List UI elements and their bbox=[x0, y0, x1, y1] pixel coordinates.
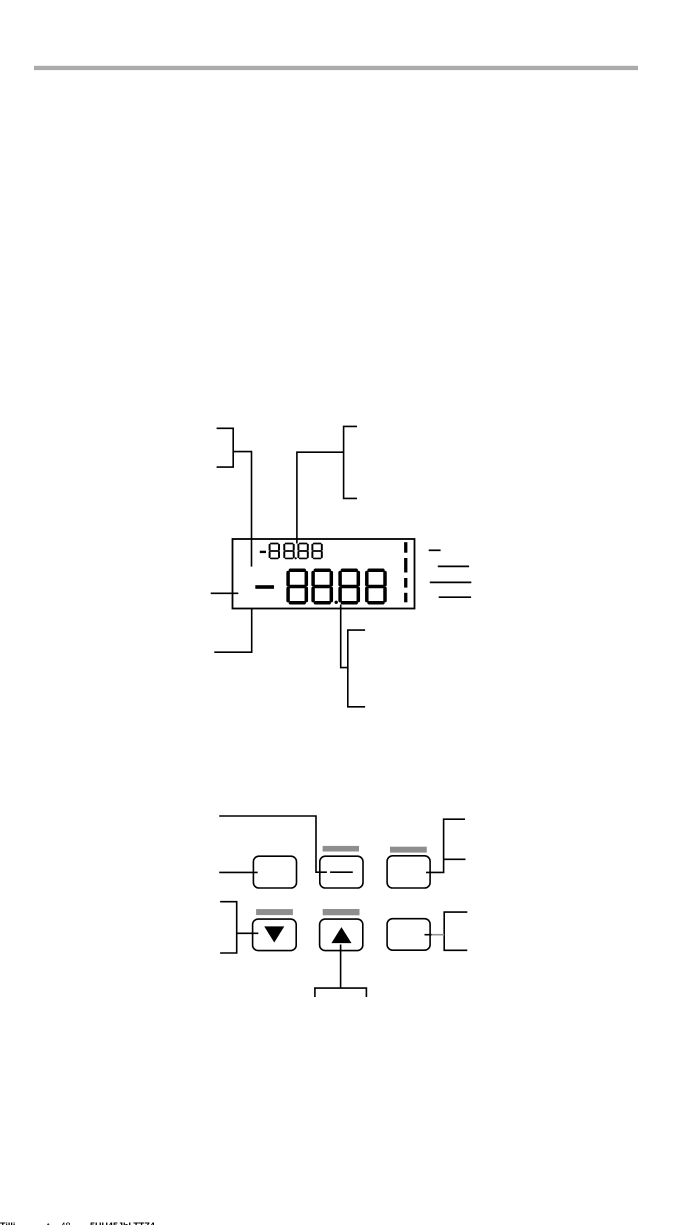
svg-text:t: t bbox=[47, 1221, 50, 1225]
svg-text:48: 48 bbox=[61, 1221, 71, 1225]
svg-text:Tilli: Tilli bbox=[0, 1221, 15, 1225]
svg-text:5HH45JbLTTZ4: 5HH45JbLTTZ4 bbox=[90, 1221, 155, 1225]
